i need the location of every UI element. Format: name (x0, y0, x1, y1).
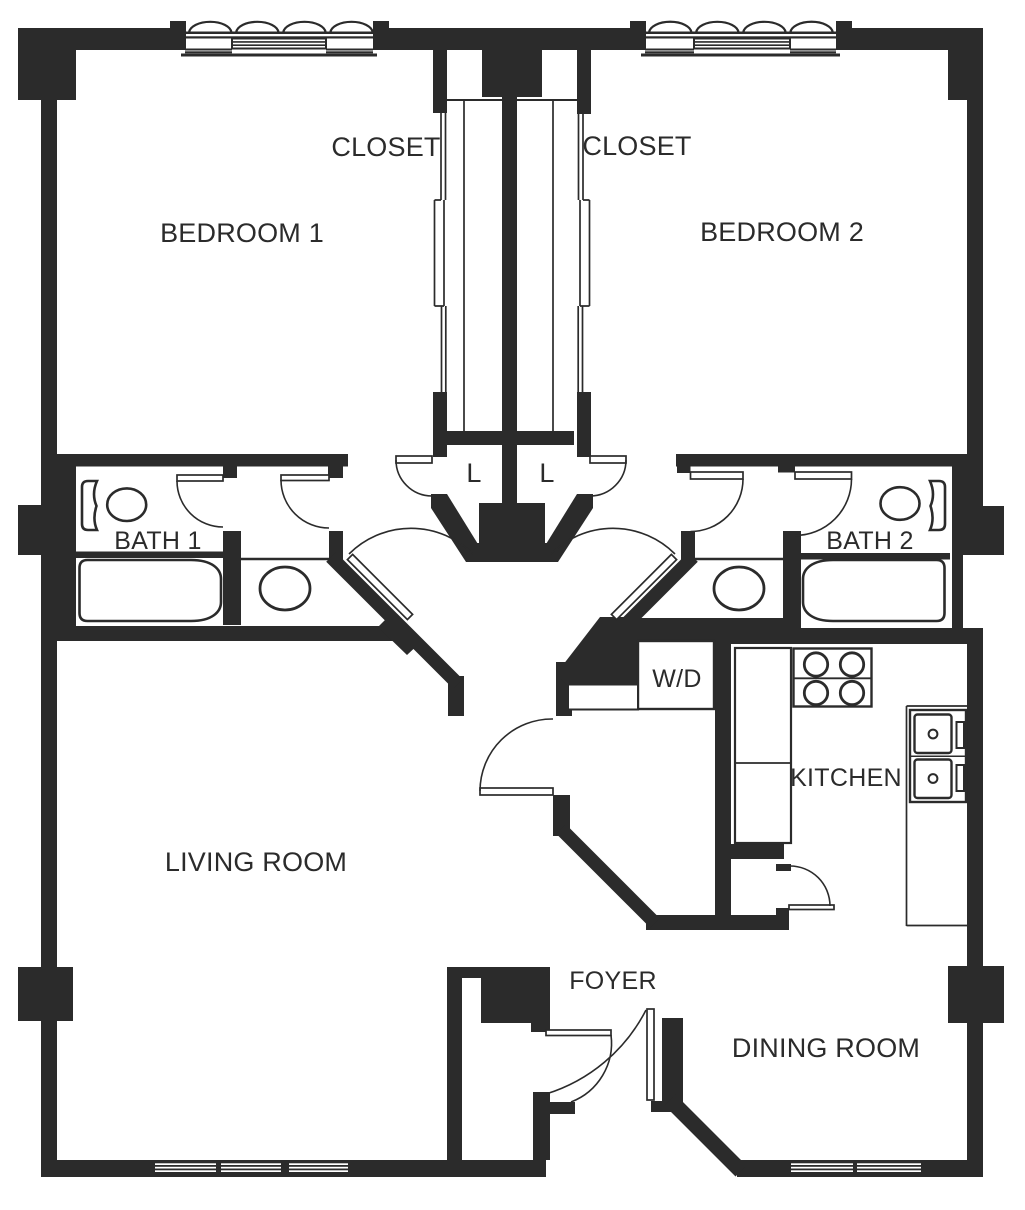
svg-text:L: L (539, 458, 554, 488)
svg-text:W/D: W/D (652, 665, 702, 693)
svg-text:CLOSET: CLOSET (331, 132, 440, 162)
svg-text:BATH 1: BATH 1 (114, 527, 201, 555)
svg-text:BEDROOM 1: BEDROOM 1 (160, 218, 324, 248)
svg-text:CLOSET: CLOSET (582, 131, 691, 161)
svg-text:FOYER: FOYER (569, 967, 657, 995)
svg-text:BATH 2: BATH 2 (826, 527, 913, 555)
svg-text:BEDROOM 2: BEDROOM 2 (700, 217, 864, 247)
svg-text:L: L (466, 458, 481, 488)
svg-text:LIVING ROOM: LIVING ROOM (165, 847, 347, 877)
svg-text:KITCHEN: KITCHEN (790, 764, 902, 792)
svg-text:DINING ROOM: DINING ROOM (732, 1033, 920, 1063)
